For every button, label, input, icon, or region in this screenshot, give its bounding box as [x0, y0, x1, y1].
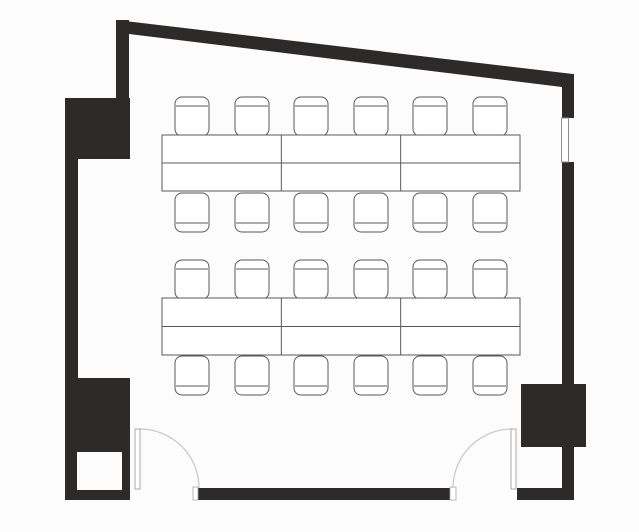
chair-row-1-bottom-chair-3	[294, 193, 328, 232]
floor-plan-canvas	[0, 0, 639, 532]
chair-row-2-bottom-chair-6	[473, 356, 507, 395]
chair-row-2-bottom-chair-2	[235, 356, 269, 395]
chair-row-2-top-chair-1	[175, 260, 209, 299]
chair-row-2-bottom-chair-3	[294, 356, 328, 395]
window-right	[562, 118, 569, 162]
wall-left-pillar	[65, 98, 130, 159]
chair-row-1-bottom-chair-5	[413, 193, 447, 232]
chair-row-1-bottom-chair-1	[175, 193, 209, 232]
chair-row-1-top-chair-2	[235, 97, 269, 136]
wall-right-column	[521, 384, 586, 447]
chair-row-2-top-chair-6	[473, 260, 507, 299]
chair-row-2-bottom-chair-5	[413, 356, 447, 395]
chair-row-1-bottom-chair-2	[235, 193, 269, 232]
wall-left-strip	[65, 158, 78, 379]
chair-row-2-top-chair-3	[294, 260, 328, 299]
chair-row-2-bottom-chair-1	[175, 356, 209, 395]
wall-bottom-left	[198, 488, 450, 500]
door-left-leaf	[135, 429, 140, 489]
chair-row-2-top-chair-4	[354, 260, 388, 299]
chair-row-1-top-chair-5	[413, 97, 447, 136]
chair-row-2-top-chair-2	[235, 260, 269, 299]
floor-plan	[0, 0, 639, 532]
chair-row-1-bottom-chair-4	[354, 193, 388, 232]
chair-row-1-top-chair-4	[354, 97, 388, 136]
chair-row-2-top-chair-5	[413, 260, 447, 299]
door-jamb-left	[193, 487, 198, 500]
wall-right-lower	[562, 446, 574, 500]
chair-row-1-top-chair-1	[175, 97, 209, 136]
wall-niche	[77, 452, 122, 490]
chair-row-1-top-chair-3	[294, 97, 328, 136]
chair-row-1-bottom-chair-6	[473, 193, 507, 232]
chair-row-1-top-chair-6	[473, 97, 507, 136]
wall-right-top	[562, 74, 574, 118]
wall-right-mid	[562, 162, 574, 384]
door-right-leaf	[511, 429, 516, 489]
chair-row-2-bottom-chair-4	[354, 356, 388, 395]
door-jamb-right	[450, 487, 456, 500]
wall-left-upper	[116, 20, 129, 99]
